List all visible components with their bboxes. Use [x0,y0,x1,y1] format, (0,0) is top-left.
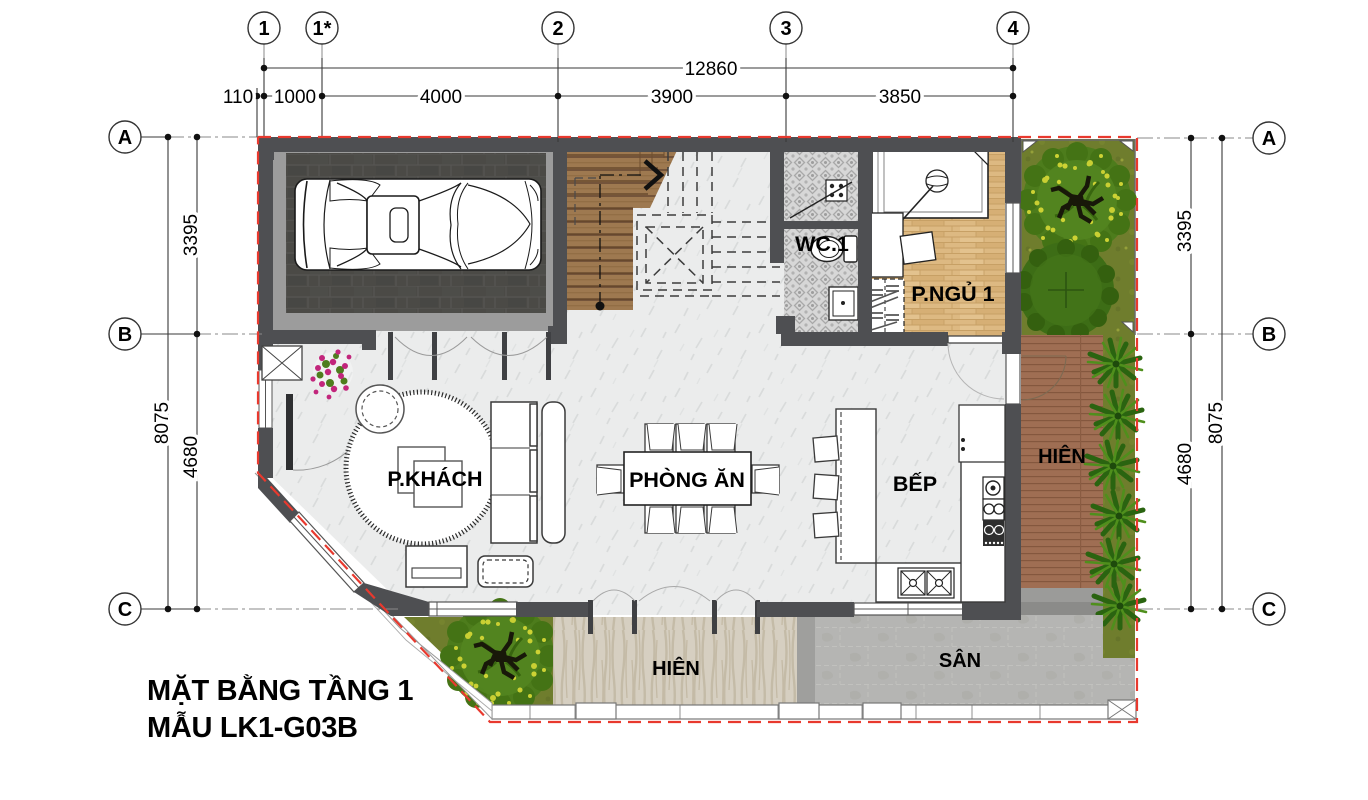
svg-text:110: 110 [223,87,253,108]
svg-text:C: C [1262,599,1276,621]
svg-text:4: 4 [1007,18,1019,40]
svg-text:P.KHÁCH: P.KHÁCH [387,466,482,491]
svg-text:3900: 3900 [651,87,693,108]
svg-text:B: B [118,324,132,346]
svg-text:1000: 1000 [274,87,316,108]
svg-text:3850: 3850 [879,87,921,108]
svg-text:3395: 3395 [1175,210,1196,252]
svg-text:3: 3 [780,18,791,40]
svg-text:PHÒNG ĂN: PHÒNG ĂN [629,467,745,492]
svg-text:4680: 4680 [181,436,202,478]
svg-text:A: A [1262,128,1276,150]
svg-text:WC.1: WC.1 [795,232,849,256]
svg-text:4000: 4000 [420,87,462,108]
svg-text:A: A [118,127,132,149]
svg-text:8075: 8075 [1206,402,1227,444]
svg-text:HIÊN: HIÊN [652,656,700,680]
svg-text:BẾP: BẾP [893,471,937,496]
svg-text:2: 2 [552,18,563,40]
svg-text:C: C [118,599,132,621]
svg-text:8075: 8075 [152,402,173,444]
svg-text:HIÊN: HIÊN [1038,444,1086,468]
svg-text:3395: 3395 [181,214,202,256]
svg-text:4680: 4680 [1175,443,1196,485]
svg-text:MẪU LK1-G03B: MẪU LK1-G03B [147,710,358,744]
svg-text:1: 1 [258,18,269,40]
svg-text:B: B [1262,324,1276,346]
svg-text:P.NGỦ 1: P.NGỦ 1 [911,281,994,306]
svg-text:SÂN: SÂN [939,648,981,672]
svg-text:1*: 1* [313,18,332,40]
svg-text:MẶT BẰNG TẦNG 1: MẶT BẰNG TẦNG 1 [147,673,413,707]
svg-text:12860: 12860 [685,59,738,80]
